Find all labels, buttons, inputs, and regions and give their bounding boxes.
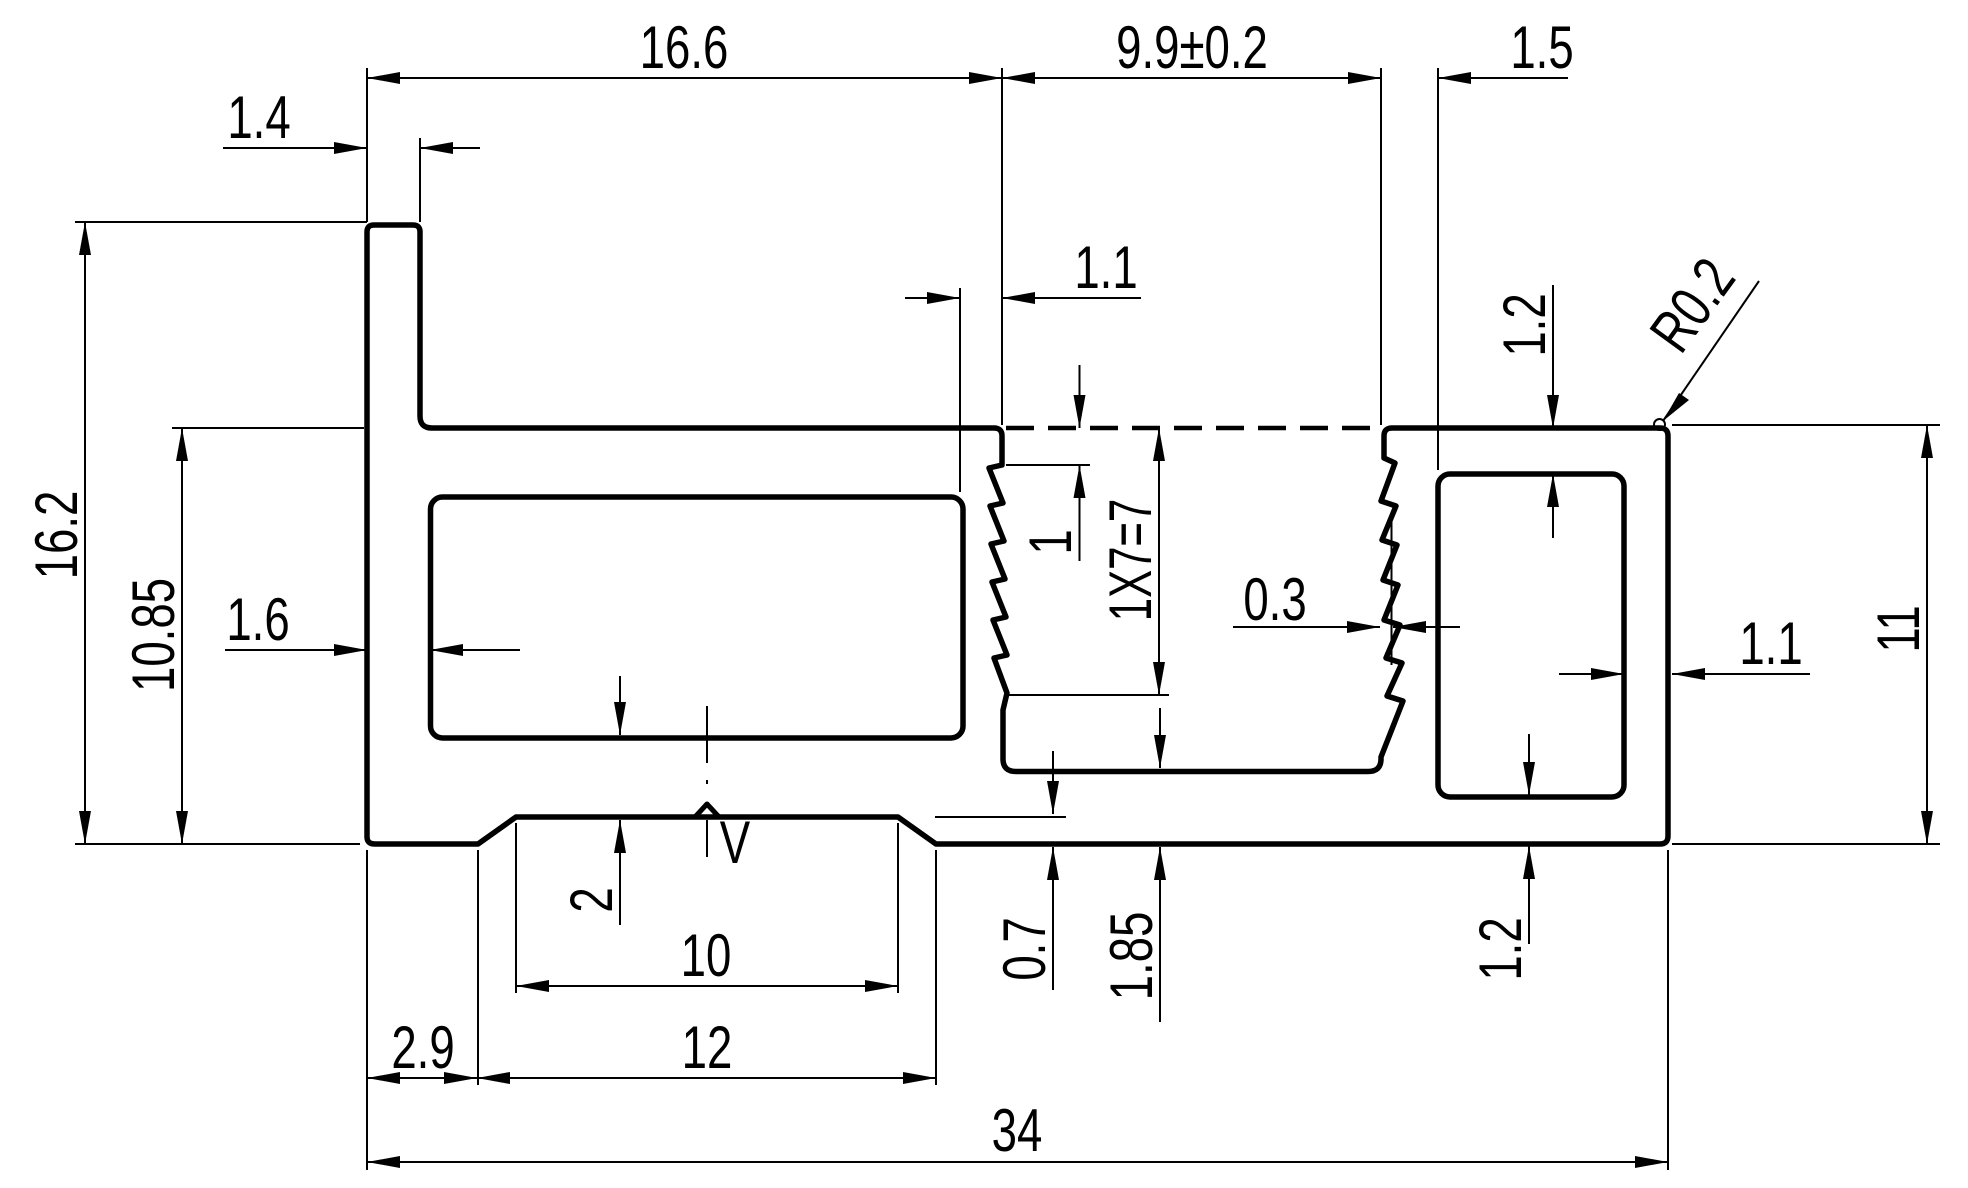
svg-text:1.2: 1.2	[1492, 293, 1558, 356]
svg-text:0.3: 0.3	[1243, 567, 1306, 633]
svg-text:9.9±0.2: 9.9±0.2	[1116, 15, 1268, 81]
svg-text:1.6: 1.6	[226, 587, 289, 653]
svg-text:11: 11	[1866, 605, 1932, 652]
svg-text:2: 2	[559, 887, 625, 912]
svg-text:12: 12	[682, 1015, 733, 1081]
svg-text:16.6: 16.6	[640, 15, 729, 81]
svg-text:1.5: 1.5	[1510, 15, 1573, 81]
svg-text:1X7=7: 1X7=7	[1097, 499, 1164, 622]
svg-text:1.1: 1.1	[1739, 611, 1802, 677]
svg-text:10.85: 10.85	[121, 578, 187, 692]
svg-text:1: 1	[1018, 529, 1084, 554]
svg-text:16.2: 16.2	[24, 491, 90, 580]
svg-text:2.9: 2.9	[391, 1015, 454, 1081]
svg-text:1.4: 1.4	[227, 85, 290, 151]
svg-text:1.2: 1.2	[1468, 917, 1534, 980]
svg-text:10: 10	[681, 923, 732, 989]
svg-text:1.1: 1.1	[1074, 235, 1137, 301]
svg-text:0.7: 0.7	[992, 917, 1058, 980]
svg-text:1.85: 1.85	[1099, 912, 1165, 1001]
svg-text:V: V	[720, 810, 751, 876]
svg-text:34: 34	[992, 1098, 1043, 1164]
